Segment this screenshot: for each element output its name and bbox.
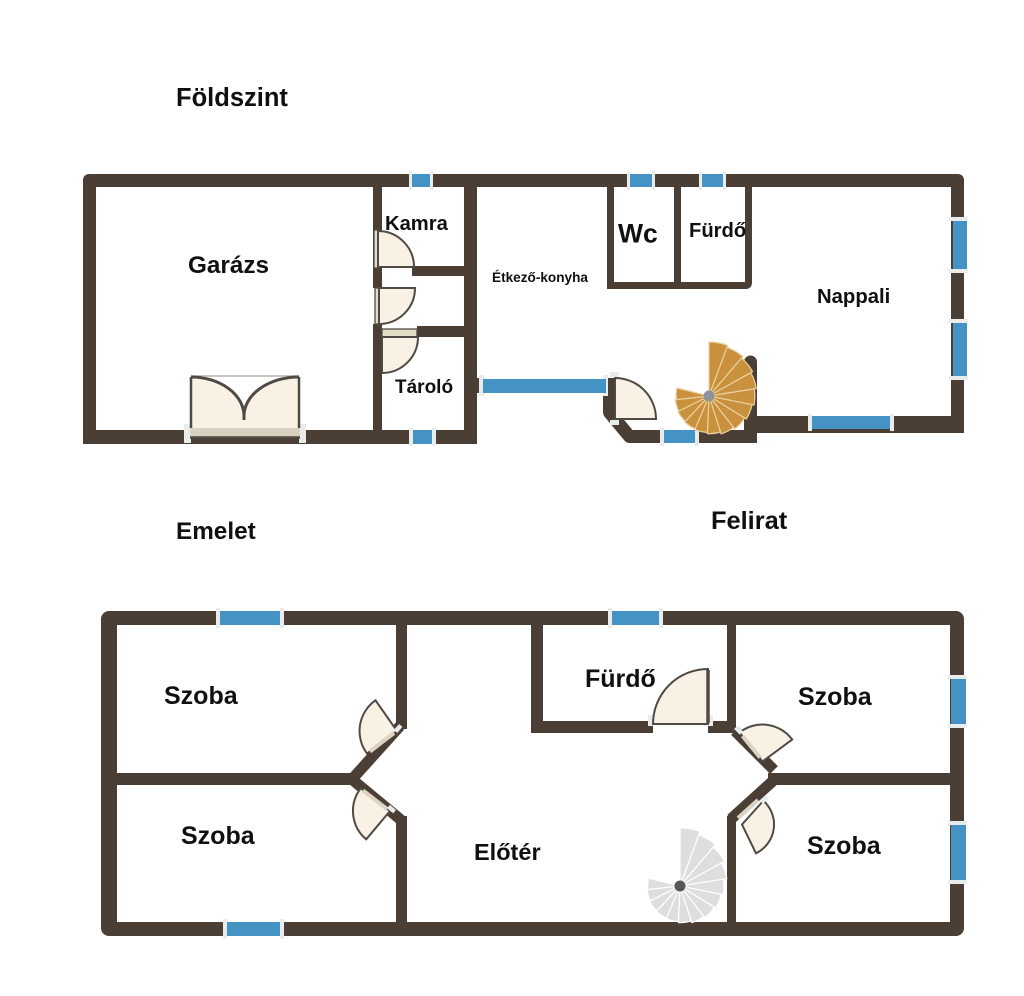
svg-text:Fürdő: Fürdő [585,665,656,693]
svg-text:Étkező-konyha: Étkező-konyha [492,270,588,285]
svg-text:Előtér: Előtér [474,839,541,865]
svg-text:Tároló: Tároló [395,377,453,398]
svg-text:Emelet: Emelet [176,518,256,545]
svg-text:Kamra: Kamra [385,213,449,235]
svg-text:Földszint: Földszint [176,84,288,112]
svg-text:Garázs: Garázs [188,252,269,279]
svg-text:Szoba: Szoba [807,832,882,860]
svg-text:Szoba: Szoba [164,682,239,710]
svg-text:Wc: Wc [618,219,658,249]
svg-text:Szoba: Szoba [798,683,873,711]
svg-text:Nappali: Nappali [817,286,890,308]
svg-text:Felirat: Felirat [711,507,788,535]
svg-text:Szoba: Szoba [181,822,256,850]
svg-text:Fürdő: Fürdő [689,220,746,242]
